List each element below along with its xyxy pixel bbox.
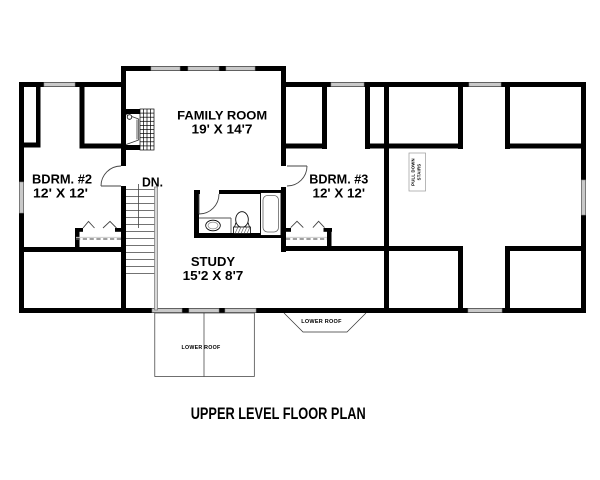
svg-text:19' X 14'7: 19' X 14'7 xyxy=(192,122,253,137)
svg-text:BDRM. #3: BDRM. #3 xyxy=(309,172,368,186)
svg-text:STUDY: STUDY xyxy=(191,254,236,269)
svg-text:UPPER LEVEL FLOOR PLAN: UPPER LEVEL FLOOR PLAN xyxy=(191,405,366,423)
svg-text:12' X 12': 12' X 12' xyxy=(33,187,88,201)
svg-text:12' X 12': 12' X 12' xyxy=(313,187,366,201)
svg-text:PULL DOWN: PULL DOWN xyxy=(411,158,416,186)
svg-text:15'2 X 8'7: 15'2 X 8'7 xyxy=(183,268,244,283)
svg-text:LOWER ROOF: LOWER ROOF xyxy=(182,345,222,351)
svg-text:BDRM. #2: BDRM. #2 xyxy=(32,172,92,186)
svg-text:FAMILY ROOM: FAMILY ROOM xyxy=(177,109,267,123)
svg-text:DN.: DN. xyxy=(142,176,163,190)
svg-text:LOWER ROOF: LOWER ROOF xyxy=(301,319,342,325)
svg-text:STAIRS: STAIRS xyxy=(417,164,422,181)
